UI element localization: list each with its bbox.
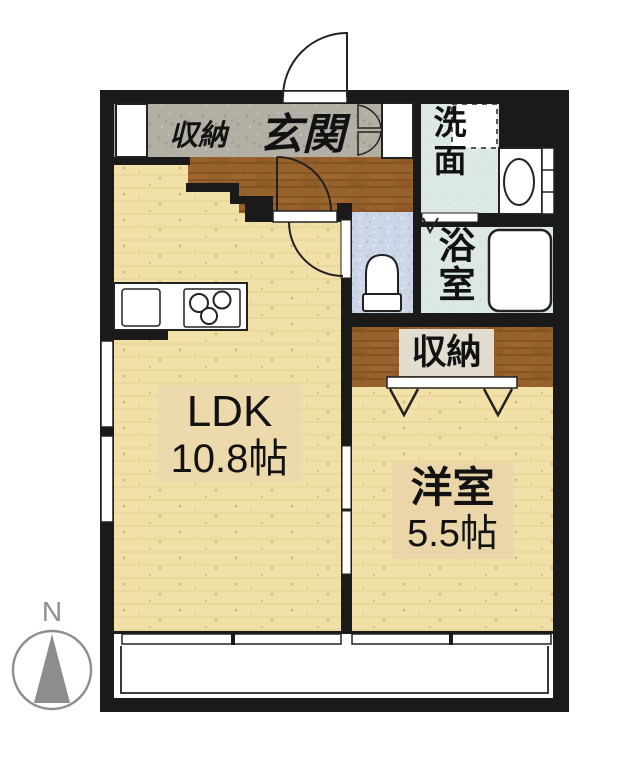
compass-icon [13, 631, 91, 709]
floorplan-image: 収納 玄関 洗面 浴室 収納 LDK 10.8帖 洋室 5.5帖 N [0, 0, 627, 761]
balcony [114, 633, 553, 698]
sink-icon [122, 289, 160, 326]
hall-door-threshold [273, 211, 337, 222]
wall-hall-step4 [245, 204, 273, 222]
wall-hall-step3 [239, 196, 273, 204]
balcony-sliding-windows [122, 633, 551, 645]
ldk-room-label: LDK 10.8帖 [158, 385, 301, 483]
ldk-size: 10.8帖 [158, 437, 301, 481]
stove-icon [184, 289, 240, 327]
window-left-1 [101, 341, 113, 427]
closet-sliding-door [387, 377, 517, 388]
wall-wet-vertical [413, 95, 421, 313]
western-room-label: 洋室 5.5帖 [392, 462, 513, 559]
wall-corner-block [499, 90, 553, 148]
washbasin-icon [499, 148, 554, 214]
bathroom-door [422, 213, 478, 222]
window-left-2 [101, 436, 113, 522]
compass-north-label: N [34, 596, 70, 628]
kitchen-counter [114, 283, 247, 330]
western-room-size: 5.5帖 [392, 513, 513, 556]
shoe-cabinet [382, 103, 413, 158]
entry-left-closet [116, 104, 147, 157]
wall-bottom [100, 698, 569, 712]
wall-kitchen-stub [114, 330, 168, 340]
bathroom-label: 浴室 [426, 226, 480, 318]
entry-door-icon [283, 32, 347, 97]
wall-hall-step2 [230, 183, 239, 204]
washroom-label: 洗面 [423, 105, 471, 211]
wall-entry-step [114, 157, 190, 165]
bathtub-icon [489, 230, 551, 311]
entry-label: 玄関 [250, 100, 354, 162]
entry-storage-label: 収納 [158, 112, 238, 154]
ldk-name: LDK [158, 387, 301, 437]
toilet-icon [363, 255, 401, 311]
balcony-floor [114, 644, 553, 698]
western-room-name: 洋室 [392, 463, 513, 513]
closet-label: 収納 [399, 329, 494, 376]
wall-right [553, 90, 569, 712]
